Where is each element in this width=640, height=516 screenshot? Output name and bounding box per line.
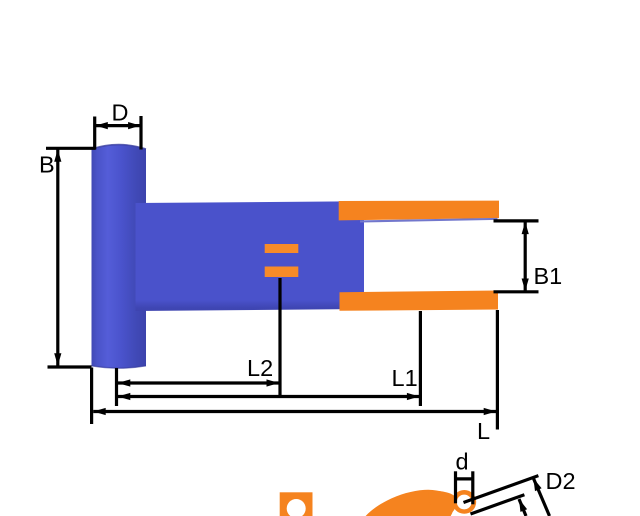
svg-text:L1: L1: [392, 365, 418, 391]
svg-text:L: L: [477, 418, 490, 444]
svg-text:D2: D2: [546, 468, 576, 494]
svg-text:d: d: [456, 449, 469, 475]
svg-text:L2: L2: [247, 355, 273, 381]
svg-text:D: D: [112, 100, 129, 126]
svg-text:B1: B1: [534, 263, 563, 289]
svg-text:B: B: [39, 152, 55, 178]
